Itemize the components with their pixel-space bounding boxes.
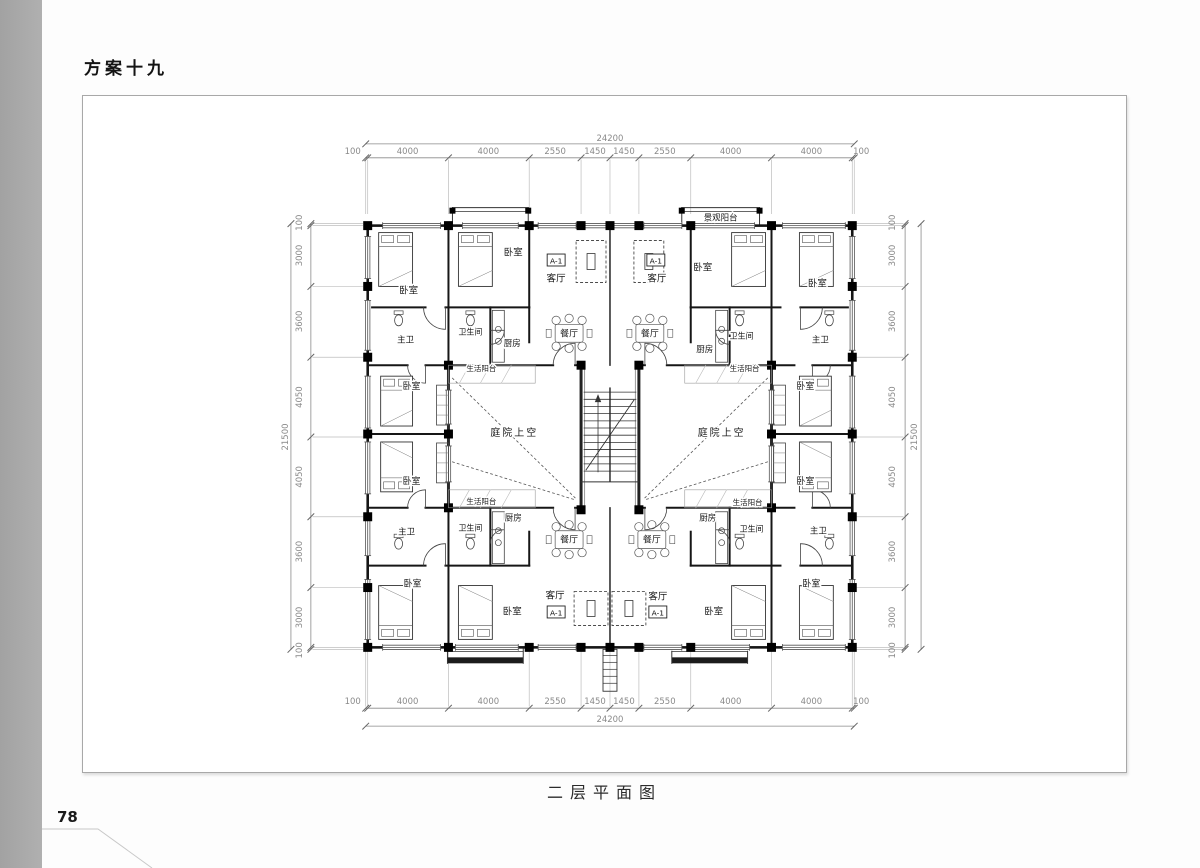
room-label-bedroom: 卧室 [404,578,422,590]
room-label-courtyard: 庭院上空 [490,426,538,439]
scanned-book-page: 方案十九 10010040004000400040002550255014501… [0,0,1200,868]
dim-total: 24200 [597,133,624,143]
dim-total: 21500 [280,424,290,451]
dim-label: 2550 [544,696,566,706]
dim-label: 4050 [887,386,897,408]
room-label-kitchen: 厨房 [504,338,521,348]
room-label-bedroom: 卧室 [693,261,712,273]
dim-label: 1450 [613,696,635,706]
dim-label: 3000 [887,607,897,629]
room-label-master_bath: 主卫 [398,527,415,537]
dim-label: 100 [887,215,897,231]
dim-label: 100 [294,215,304,231]
dim-label: 3600 [887,541,897,563]
room-label-living: 客厅 [546,590,565,602]
dim-label: 1450 [584,696,606,706]
dim-label: 100 [294,642,304,658]
room-label-bedroom: 卧室 [504,247,523,259]
room-label-master_bath: 主卫 [397,334,414,344]
room-label-bedroom: 卧室 [796,380,814,392]
room-label-dining: 餐厅 [560,327,578,339]
staircase [581,388,639,482]
room-label-courtyard: 庭院上空 [698,426,746,439]
dim-label: 2550 [544,146,566,156]
dim-label: 100 [853,696,869,706]
dim-label: 3000 [887,245,897,267]
dim-label: 100 [887,642,897,658]
dim-label: 4050 [294,466,304,488]
room-label-service_balcony: 生活阳台 [733,497,763,507]
room-label-bath: 卫生间 [740,524,764,534]
dim-label: 4050 [887,466,897,488]
floor-plan-drawing: 1001004000400040004000255025501450145014… [83,96,1126,772]
room-label-bedroom: 卧室 [399,284,418,296]
room-label-service_balcony: 生活阳台 [730,363,760,373]
dim-label: 4000 [478,696,500,706]
room-label-bedroom: 卧室 [704,605,723,617]
unit-tag: A-1 [550,257,563,266]
dim-total: 24200 [597,714,624,724]
dim-label: 4000 [478,146,500,156]
dim-label: 3000 [294,607,304,629]
room-label-kitchen: 厨房 [699,513,716,523]
dim-label: 3000 [294,245,304,267]
dim-label: 3600 [294,541,304,563]
drawing-frame: 1001004000400040004000255025501450145014… [82,95,1127,773]
dim-label: 2550 [654,696,676,706]
dim-label: 100 [853,146,869,156]
dim-label: 4050 [294,386,304,408]
dim-label: 1450 [584,146,606,156]
room-label-bedroom: 卧室 [808,277,827,289]
dim-label: 4000 [397,146,419,156]
room-label-service_balcony: 生活阳台 [466,496,496,506]
dim-label: 4000 [397,696,419,706]
room-label-service_balcony: 生活阳台 [466,363,496,373]
page-title: 方案十九 [84,54,168,79]
room-label-bedroom: 卧室 [403,475,421,487]
room-label-kitchen: 厨房 [696,344,713,354]
room-label-bedroom: 卧室 [796,475,814,487]
room-label-bath: 卫生间 [730,330,754,340]
room-label-master_bath: 主卫 [810,526,827,536]
room-label-bedroom: 卧室 [802,578,820,590]
dim-label: 4000 [801,146,823,156]
dim-label: 3600 [294,311,304,333]
room-label-dining: 餐厅 [643,534,661,546]
drawing-caption: 二层平面图 [82,779,1127,803]
room-label-bedroom: 卧室 [403,380,421,392]
dim-label: 4000 [720,696,742,706]
dim-label: 1450 [613,146,635,156]
dim-label: 3600 [887,311,897,333]
book-spine [0,0,42,868]
room-label-living: 客厅 [647,272,666,284]
room-label-living: 客厅 [547,272,566,284]
room-label-dining: 餐厅 [641,327,659,339]
page-number: 78 [57,808,78,826]
room-label-dining: 餐厅 [560,534,578,546]
room-label-bath: 卫生间 [458,523,482,533]
room-label-view_balcony: 景观阳台 [704,213,738,223]
unit-tag: A-1 [652,608,665,617]
dim-label: 2550 [654,146,676,156]
unit-tag: A-1 [650,257,663,266]
dim-label: 100 [345,696,361,706]
room-label-master_bath: 主卫 [812,334,829,344]
room-label-kitchen: 厨房 [505,513,522,523]
dim-label: 100 [345,146,361,156]
unit-tag: A-1 [550,608,563,617]
dim-label: 4000 [801,696,823,706]
dim-label: 4000 [720,146,742,156]
room-label-living: 客厅 [648,591,667,603]
room-label-bath: 卫生间 [458,326,482,336]
room-label-bedroom: 卧室 [503,605,522,617]
dim-total: 21500 [909,424,919,451]
